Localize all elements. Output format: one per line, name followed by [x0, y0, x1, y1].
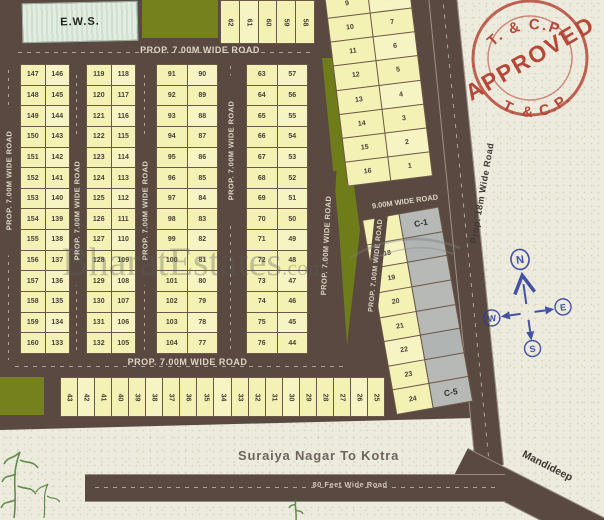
plot-number: 10 [346, 24, 355, 32]
plot-cell: 56 [278, 86, 308, 106]
plot-cell: 104 [157, 333, 187, 353]
plot-number: 33 [236, 393, 243, 401]
plot-cell: 80 [188, 271, 218, 291]
plot-number: 130 [93, 298, 105, 305]
plot-number: 61 [245, 18, 252, 26]
plot-cell: 26 [351, 378, 367, 416]
plot-cell: 137 [46, 251, 70, 271]
plot-cell: 127 [87, 230, 111, 250]
plot-number: 27 [338, 393, 345, 401]
west-arrow-icon [500, 311, 510, 320]
plot-number: 85 [198, 175, 206, 182]
plot-cell: 95 [157, 148, 187, 168]
plot-number: 159 [27, 319, 39, 326]
plot-cell: 146 [46, 65, 70, 85]
plot-number: 108 [117, 278, 129, 285]
compass-north-label: N [515, 254, 525, 267]
plot-cell: 148 [21, 86, 45, 106]
plot-number: 153 [27, 195, 39, 202]
plot-number: 136 [51, 278, 63, 285]
watermark-swoosh [345, 232, 465, 264]
plot-number: 150 [27, 133, 39, 140]
plot-number: 21 [396, 322, 405, 330]
plot-number: 9 [345, 0, 350, 7]
plot-number: 124 [93, 175, 105, 182]
plot-number: 145 [51, 92, 63, 99]
compass-west-label: W [487, 313, 497, 324]
plot-number: 31 [270, 393, 277, 401]
plot-cell: 40 [112, 378, 128, 416]
plot-cell: 33 [232, 378, 248, 416]
plot-number: 118 [118, 71, 129, 78]
south-arrow-icon [526, 331, 535, 341]
plot-cell: 30 [283, 378, 299, 416]
road-label-bottom: PROP. 7.00M WIDE ROAD [80, 357, 295, 367]
road-label-vertical-2: PROP. 7.00M WIDE ROAD [71, 136, 84, 286]
plot-number: 160 [27, 340, 39, 347]
plot-cell: 61 [240, 1, 258, 43]
plot-number: 40 [117, 393, 124, 401]
plot-number: 79 [198, 298, 206, 305]
plot-number: 66 [258, 133, 266, 140]
plot-number: 6 [393, 43, 398, 50]
plot-cell: 144 [46, 106, 70, 126]
plot-cell: 158 [21, 292, 45, 312]
plot-number: 48 [288, 257, 296, 264]
plot-cell: 134 [46, 313, 70, 333]
plot-cell: 136 [46, 271, 70, 291]
plot-number: C-5 [443, 386, 458, 398]
plot-cell: 77 [188, 333, 218, 353]
plot-cell: 103 [157, 313, 187, 333]
plot-number: 112 [118, 195, 129, 202]
plot-number: 78 [198, 319, 206, 326]
plot-cell: 70 [247, 209, 277, 229]
plot-cell: 28 [317, 378, 333, 416]
plot-number: 102 [166, 298, 178, 305]
plot-number: 38 [151, 393, 158, 401]
plot-number: 156 [27, 257, 39, 264]
plot-cell: 126 [87, 209, 111, 229]
plot-number: 28 [321, 393, 328, 401]
plot-number: 56 [288, 92, 296, 99]
plot-number: 43 [66, 393, 73, 401]
plot-cell: 110 [112, 230, 136, 250]
plot-cell: 125 [87, 189, 111, 209]
green-block-bottom-left [0, 377, 44, 415]
plot-number: 125 [93, 195, 105, 202]
plot-number: 62 [226, 18, 233, 26]
plot-cell: 57 [278, 65, 308, 85]
plot-number: 70 [258, 216, 266, 223]
plot-cell: 79 [188, 292, 218, 312]
site-plan-map: E.W.S. 147146148145149144150143151142152… [0, 0, 604, 520]
plant-sketch-icon [0, 430, 72, 520]
plot-cell: 60 [259, 1, 277, 43]
plot-number: 106 [117, 319, 129, 326]
plot-cell: 44 [278, 333, 308, 353]
plot-column-105-132: 1191181201171211161221151231141241131251… [86, 64, 136, 354]
plot-number: 81 [198, 257, 206, 264]
plot-number: 68 [258, 175, 266, 182]
plot-cell: 69 [247, 189, 277, 209]
plot-cell: 152 [21, 168, 45, 188]
plot-cell: 124 [87, 168, 111, 188]
plot-cell: 157 [21, 271, 45, 291]
plot-cell: 155 [21, 230, 45, 250]
plot-number: 107 [117, 298, 129, 305]
plot-number: 146 [51, 71, 63, 78]
plot-cell: 121 [87, 106, 111, 126]
plot-cell: 35 [197, 378, 213, 416]
plot-number: 98 [168, 216, 176, 223]
plot-number: 88 [198, 113, 206, 120]
plot-column-44-76: 6357645665556654675368526951705071497248… [246, 64, 308, 354]
plot-cell: 107 [112, 292, 136, 312]
plot-number: 30 [287, 393, 294, 401]
road-label-top: PROP. 7.00M WIDE ROAD [90, 45, 310, 55]
plot-cell: 111 [112, 209, 136, 229]
plot-number: 55 [288, 113, 296, 120]
plot-number: 86 [198, 154, 206, 161]
plot-cell: 86 [188, 148, 218, 168]
plot-number: 65 [258, 113, 266, 120]
plot-cell: 109 [112, 251, 136, 271]
plot-cell: 138 [46, 230, 70, 250]
plot-cell: 39 [129, 378, 145, 416]
plot-cell: 68 [247, 168, 277, 188]
plot-number: 141 [51, 175, 63, 182]
plot-cell: 115 [112, 127, 136, 147]
plot-cell: 93 [157, 106, 187, 126]
plot-number: 75 [258, 319, 266, 326]
plot-number: 76 [258, 340, 266, 347]
plot-cell: 120 [87, 86, 111, 106]
plot-number: 109 [117, 257, 129, 264]
plot-number: 90 [198, 71, 206, 78]
plot-cell: 159 [21, 313, 45, 333]
plot-number: 16 [363, 167, 372, 175]
plot-number: 111 [118, 216, 129, 223]
plot-number: 7 [390, 19, 395, 26]
plot-cell: 139 [46, 209, 70, 229]
plot-number: 110 [118, 236, 129, 243]
plot-cell: 113 [112, 168, 136, 188]
plot-cell: 50 [278, 209, 308, 229]
plot-number: 35 [202, 393, 209, 401]
plot-number: 59 [283, 18, 290, 26]
plot-number: 128 [93, 257, 105, 264]
plot-number: 93 [168, 113, 176, 120]
plot-number: 2 [405, 139, 410, 146]
plot-number: 144 [51, 113, 63, 120]
plot-number: 84 [198, 195, 206, 202]
plot-cell: 98 [157, 209, 187, 229]
plot-cell: 142 [46, 148, 70, 168]
plot-number: 116 [118, 113, 129, 120]
plot-cell: 130 [87, 292, 111, 312]
plot-cell: 90 [188, 65, 218, 85]
north-arrow-icon [512, 274, 534, 295]
plot-cell: 132 [87, 333, 111, 353]
plot-number: 5 [396, 67, 401, 74]
plot-cell: 156 [21, 251, 45, 271]
plot-number: 119 [93, 71, 104, 78]
plot-cell: 52 [278, 168, 308, 188]
plot-number: 143 [51, 133, 63, 140]
plot-number: 127 [93, 236, 105, 243]
plot-number: 71 [258, 236, 266, 243]
compass-rose: N W E S [471, 240, 582, 364]
plot-number: 57 [288, 71, 296, 78]
plot-cell: 24 [393, 384, 433, 414]
plot-number: 151 [27, 154, 39, 161]
plot-number: 34 [219, 393, 226, 401]
approved-stamp: T. & C.P. T. & C.P. APPROVED [448, 0, 604, 146]
plot-cell: 131 [87, 313, 111, 333]
plot-cell: 105 [112, 333, 136, 353]
plot-cell: 27 [334, 378, 350, 416]
plot-number: 53 [288, 154, 296, 161]
plot-number: 129 [93, 278, 105, 285]
plot-number: 94 [168, 133, 176, 140]
plot-cell: 100 [157, 251, 187, 271]
plot-cell: 160 [21, 333, 45, 353]
plot-cell: 25 [368, 378, 384, 416]
plot-number: 77 [198, 340, 206, 347]
plot-cell: 91 [157, 65, 187, 85]
plot-cell: 135 [46, 292, 70, 312]
plot-number: 126 [93, 216, 105, 223]
plot-cell: 106 [112, 313, 136, 333]
plot-cell: 46 [278, 292, 308, 312]
road-label-vertical-3: PROP. 7.00M WIDE ROAD [139, 136, 152, 286]
plot-cell: 141 [46, 168, 70, 188]
plot-number: 148 [27, 92, 39, 99]
plot-cell: 43 [61, 378, 77, 416]
plot-cell: 87 [188, 127, 218, 147]
plot-number: 134 [51, 319, 63, 326]
plot-number: 155 [27, 236, 39, 243]
plot-column-77-104: 9190928993889487958696859784988399821008… [156, 64, 218, 354]
plot-cell: 64 [247, 86, 277, 106]
plot-number: 122 [93, 133, 105, 140]
plot-number: 115 [118, 133, 129, 140]
plot-number: 97 [168, 195, 176, 202]
plot-cell: 94 [157, 127, 187, 147]
plot-cell: 116 [112, 106, 136, 126]
plot-cell: 150 [21, 127, 45, 147]
plot-number: 135 [51, 298, 63, 305]
plot-number: 157 [27, 278, 39, 285]
plot-number: 25 [372, 393, 379, 401]
plot-number: 8 [387, 0, 392, 2]
plot-number: 89 [198, 92, 206, 99]
plot-cell: 72 [247, 251, 277, 271]
plot-number: 104 [166, 340, 178, 347]
plot-cell: 151 [21, 148, 45, 168]
plot-number: 60 [264, 18, 271, 26]
plot-number: 133 [51, 340, 63, 347]
plot-number: 95 [168, 154, 176, 161]
plot-number: 74 [258, 298, 266, 305]
plot-strip-bottom-25-43: 43424140393837363534333231302928272625 [60, 377, 385, 417]
plot-number: 87 [198, 133, 206, 140]
plot-cell: 16 [346, 157, 390, 185]
plot-cell: 59 [277, 1, 295, 43]
plot-number: 137 [51, 257, 63, 264]
compass-south-label: S [529, 344, 536, 355]
plot-number: 99 [168, 236, 176, 243]
compass-east-label: E [559, 302, 566, 313]
plot-number: 147 [27, 71, 39, 78]
plot-cell: 66 [247, 127, 277, 147]
plot-number: 100 [166, 257, 178, 264]
plot-cell: 153 [21, 189, 45, 209]
plot-cell: 81 [188, 251, 218, 271]
plot-cell: 97 [157, 189, 187, 209]
plot-cell: 89 [188, 86, 218, 106]
plot-cell: 123 [87, 148, 111, 168]
plot-number: 80 [198, 278, 206, 285]
plot-number: 154 [27, 216, 39, 223]
plot-number: 120 [93, 92, 105, 99]
plot-cell: 119 [87, 65, 111, 85]
plot-cell: 36 [180, 378, 196, 416]
plot-number: 73 [258, 278, 266, 285]
plot-number: 29 [304, 393, 311, 401]
plot-cell: 54 [278, 127, 308, 147]
plot-cell: 38 [146, 378, 162, 416]
plot-cell: 49 [278, 230, 308, 250]
plot-number: 20 [391, 298, 400, 306]
plot-number: 96 [168, 175, 176, 182]
plot-cell: 74 [247, 292, 277, 312]
road-label-vertical-1: PROP. 7.00M WIDE ROAD [3, 106, 16, 256]
plot-number: 11 [349, 48, 357, 56]
plot-number: 12 [352, 72, 361, 80]
plot-cell: 92 [157, 86, 187, 106]
plot-number: 101 [166, 278, 178, 285]
plot-cell: 108 [112, 271, 136, 291]
plot-cell: 75 [247, 313, 277, 333]
plot-cell: 29 [300, 378, 316, 416]
plot-cell: 117 [112, 86, 136, 106]
plot-cell: 67 [247, 148, 277, 168]
plot-cell: 154 [21, 209, 45, 229]
plot-cell: 62 [221, 1, 239, 43]
plot-number: 14 [358, 120, 367, 128]
plot-number: 149 [27, 113, 39, 120]
plot-number: 152 [27, 175, 39, 182]
plot-number: 46 [288, 298, 296, 305]
green-block-top [142, 0, 218, 38]
plot-number: 15 [360, 144, 369, 152]
plot-cell: 45 [278, 313, 308, 333]
plot-cell: 114 [112, 148, 136, 168]
plot-cell: 58 [296, 1, 314, 43]
plot-number: 64 [258, 92, 266, 99]
plot-cell: 149 [21, 106, 45, 126]
highway-name-label: Suraiya Nagar To Kotra [238, 448, 399, 463]
plot-cell: 140 [46, 189, 70, 209]
plot-number: 131 [93, 319, 105, 326]
plot-number: 63 [258, 71, 266, 78]
plot-cell: 65 [247, 106, 277, 126]
plot-number: 22 [400, 346, 409, 354]
plot-number: 36 [185, 393, 192, 401]
plot-number: 39 [134, 393, 141, 401]
plot-number: 132 [93, 340, 105, 347]
plot-column-133-160: 1471461481451491441501431511421521411531… [20, 64, 70, 354]
plot-number: 72 [258, 257, 266, 264]
plot-cell: 73 [247, 271, 277, 291]
plot-strip-top-58-62: 6261605958 [220, 0, 315, 44]
road-label-vertical-4: PROP. 7.00M WIDE ROAD [225, 76, 238, 226]
plot-number: 158 [27, 298, 39, 305]
plot-number: 3 [402, 115, 407, 122]
plot-number: 51 [288, 195, 296, 202]
plot-cell: 83 [188, 209, 218, 229]
plot-cell: 112 [112, 189, 136, 209]
plot-number: 47 [288, 278, 296, 285]
plot-number: 19 [387, 274, 396, 282]
sprig-icon [288, 496, 304, 520]
plot-number: 42 [83, 393, 90, 401]
plot-number: 23 [404, 371, 413, 379]
plot-cell: 51 [278, 189, 308, 209]
plot-cell: 102 [157, 292, 187, 312]
plot-cell: 55 [278, 106, 308, 126]
plot-number: 140 [51, 195, 63, 202]
ews-label: E.W.S. [60, 16, 100, 29]
plot-cell: 47 [278, 271, 308, 291]
plot-cell: 128 [87, 251, 111, 271]
plot-number: 67 [258, 154, 266, 161]
plot-number: 123 [93, 154, 105, 161]
plot-number: 32 [253, 393, 260, 401]
plot-number: 52 [288, 175, 296, 182]
plot-number: 121 [93, 113, 105, 120]
plot-cell: 118 [112, 65, 136, 85]
plot-number: 138 [51, 236, 63, 243]
plot-cell: 82 [188, 230, 218, 250]
plot-number: 82 [198, 236, 206, 243]
plot-number: 24 [408, 395, 417, 403]
highway-width-label: 80 Feet Wide Road [230, 480, 470, 489]
plot-cell: 32 [249, 378, 265, 416]
plot-cell: 96 [157, 168, 187, 188]
plot-number: 54 [288, 133, 296, 140]
plot-cell: 76 [247, 333, 277, 353]
plot-cell: 133 [46, 333, 70, 353]
plot-cell: 99 [157, 230, 187, 250]
plot-number: 45 [288, 319, 296, 326]
plot-number: C-1 [413, 217, 428, 229]
plot-number: 117 [118, 92, 129, 99]
plot-number: 13 [355, 96, 364, 104]
plot-cell: 129 [87, 271, 111, 291]
plot-cell: 34 [214, 378, 230, 416]
plot-number: 91 [168, 71, 176, 78]
plot-cell: 41 [95, 378, 111, 416]
plot-number: 114 [118, 154, 129, 161]
plot-number: 105 [117, 340, 129, 347]
plot-cell: 84 [188, 189, 218, 209]
plot-cell: 147 [21, 65, 45, 85]
plot-cell: 63 [247, 65, 277, 85]
plot-number: 58 [302, 18, 309, 26]
